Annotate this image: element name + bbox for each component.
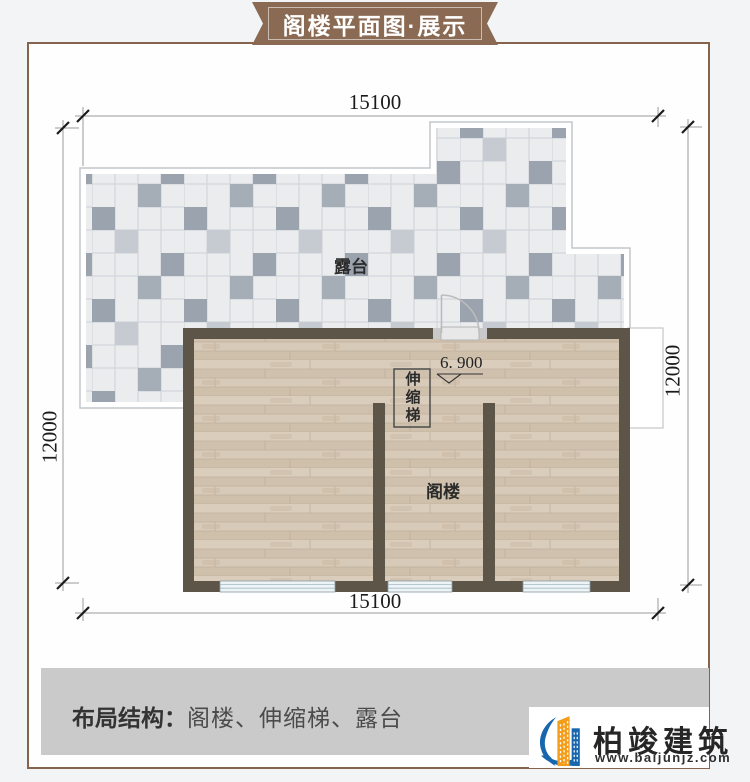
- layout-structure-label: 布局结构：: [72, 705, 187, 731]
- elevation-label: 6. 900: [440, 353, 483, 373]
- brand-website: www.baijunjz.com: [595, 750, 731, 765]
- attic-label: 阁楼: [426, 478, 460, 503]
- stairs-label: 伸缩梯: [402, 371, 423, 425]
- dimension-top: 15100: [300, 90, 450, 115]
- dimension-right: 12000: [661, 345, 686, 398]
- interior-wall-left: [373, 403, 385, 584]
- window-3: [523, 581, 590, 592]
- attic-structure: [183, 328, 630, 592]
- title-banner: 阁楼平面图·展示: [252, 2, 498, 45]
- layout-structure-text: 布局结构：阁楼、伸缩梯、露台: [72, 699, 403, 733]
- brand-logo-icon: [534, 711, 591, 768]
- right-eave-outline: [628, 328, 663, 428]
- dimension-bottom: 15100: [300, 589, 450, 614]
- layout-structure-value: 阁楼、伸缩梯、露台: [187, 705, 403, 731]
- page-title: 阁楼平面图·展示: [283, 7, 468, 41]
- dimension-left: 12000: [38, 411, 63, 464]
- terrace-label: 露台: [334, 253, 368, 278]
- interior-wall-right: [483, 403, 495, 584]
